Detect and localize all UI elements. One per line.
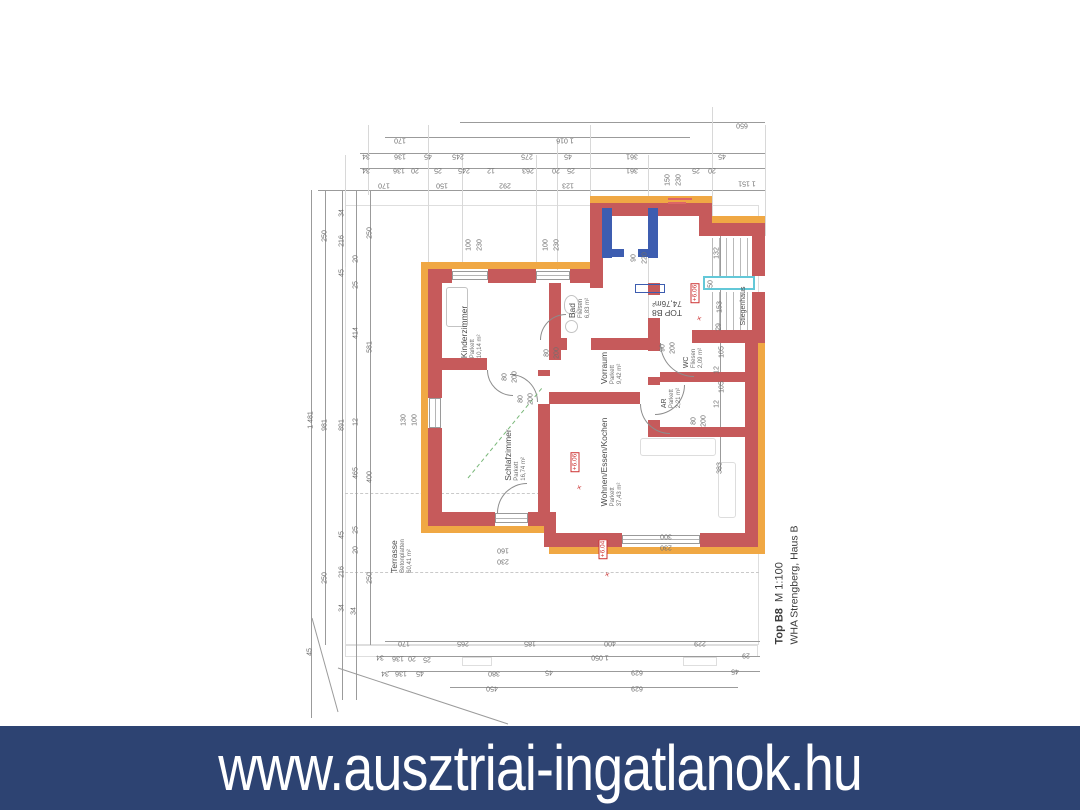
scale-label: M 1:100 xyxy=(773,562,785,602)
dimension-label: 45 xyxy=(416,670,424,677)
dimension-label: 383 xyxy=(717,462,724,474)
room-name: Bad xyxy=(568,298,578,318)
roof-edge-tab xyxy=(683,657,717,666)
dimension-label: 160 xyxy=(497,547,509,554)
website-url-text: www.ausztriai-ingatlanok.hu xyxy=(218,731,862,805)
dimension-label: 250 xyxy=(322,230,329,242)
room-label-terrasse: TerrasseBetonplatten60,41 m² xyxy=(390,539,414,573)
dimension-label: 136 xyxy=(394,153,406,160)
dimension-label: 265 xyxy=(457,640,469,647)
terrace-door xyxy=(495,513,528,523)
dimension-label: 380 xyxy=(488,670,500,677)
dimension-label: 136 xyxy=(393,167,405,174)
dimension-label: 465 xyxy=(353,467,360,479)
room-floor-finish: Parkett xyxy=(669,388,676,408)
dimension-label: 230 xyxy=(497,558,509,565)
level-marker: +6.06 xyxy=(571,452,580,472)
insulation-band xyxy=(421,526,556,533)
room-name: WC xyxy=(683,348,691,368)
dimension-line xyxy=(360,153,765,154)
room-name: Kinderzimmer xyxy=(460,306,470,358)
room-label-stiegenhaus: Stiegenhaus xyxy=(740,287,748,326)
dimension-label: 170 xyxy=(398,640,410,647)
dimension-label: 292 xyxy=(499,182,511,189)
neighbor-wall-segment xyxy=(602,249,624,257)
dimension-label: 34 xyxy=(351,607,358,615)
dimension-label: 275 xyxy=(521,153,533,160)
red-stamp-mark xyxy=(668,198,692,200)
room-name: Stiegenhaus xyxy=(740,287,748,326)
dimension-label: 150 xyxy=(436,182,448,189)
wall-segment xyxy=(699,223,765,236)
room-area: 60,41 m² xyxy=(407,539,414,573)
extension-line xyxy=(428,125,429,269)
dimension-label: 45 xyxy=(339,531,346,539)
extension-line xyxy=(368,125,369,195)
insulation-band xyxy=(712,216,765,223)
insulation-band xyxy=(549,547,765,554)
dimension-label: 136 xyxy=(392,655,404,662)
wall-segment xyxy=(692,330,765,343)
sink-outline xyxy=(565,320,578,333)
dimension-label: 250 xyxy=(322,572,329,584)
dimension-label: 200 xyxy=(701,415,708,427)
dimension-label: 34 xyxy=(339,604,346,612)
dimension-label: 629 xyxy=(631,669,643,676)
dimension-label: 230 xyxy=(477,239,484,251)
wall-segment xyxy=(648,343,660,351)
room-floor-finish: Parkett xyxy=(514,429,521,480)
room-name: AR xyxy=(661,388,669,408)
dimension-line xyxy=(318,190,765,191)
dimension-line xyxy=(342,190,343,700)
dimension-label: 90 xyxy=(660,344,667,352)
dimension-label: 25 xyxy=(434,167,442,174)
dimension-label: 20 xyxy=(353,546,360,554)
dimension-label: 34 xyxy=(376,654,384,661)
extension-line xyxy=(765,125,766,236)
dimension-line xyxy=(311,190,312,718)
room-name: Schlafzimmer xyxy=(504,429,514,480)
room-label-bad: BadFliesen6,83 m² xyxy=(568,298,592,318)
unit-stamp: TOP B874,76m² xyxy=(652,298,682,318)
window xyxy=(536,271,570,280)
insulation-band xyxy=(421,262,428,533)
dimension-label: 100 xyxy=(466,239,473,251)
extension-line xyxy=(536,155,537,269)
dimension-label: 185 xyxy=(524,640,536,647)
wall-segment xyxy=(428,358,487,370)
wall-segment xyxy=(549,392,640,404)
room-label-vorraum: VorraumParkett9,42 m² xyxy=(600,352,624,384)
level-marker: +6.06 xyxy=(691,283,700,303)
room-floor-finish: Parkett xyxy=(610,418,617,507)
wall-segment xyxy=(700,533,758,547)
dimension-label: 25 xyxy=(353,526,360,534)
dimension-label: 229 xyxy=(694,640,706,647)
dimension-label: 220 xyxy=(642,252,649,264)
dimension-label: 250 xyxy=(367,227,374,239)
dimension-label: 200 xyxy=(528,393,535,405)
insulation-band xyxy=(758,337,765,554)
room-floor-finish: Parkett xyxy=(610,352,617,384)
dimension-line xyxy=(385,137,690,138)
dimension-label: 105 xyxy=(719,381,726,393)
dimension-label: 45 xyxy=(339,269,346,277)
dimension-label: 361 xyxy=(626,167,638,174)
dimension-label: 216 xyxy=(339,235,346,247)
dimension-label: 29 xyxy=(742,652,750,659)
window xyxy=(429,398,441,428)
dimension-label: 400 xyxy=(367,471,374,483)
dimension-label: 20 xyxy=(353,255,360,263)
room-area: 2,09 m² xyxy=(698,348,705,368)
dimension-label: 45 xyxy=(564,153,572,160)
dimension-label: 200 xyxy=(554,347,561,359)
dimension-label: 230 xyxy=(554,239,561,251)
dimension-label: 90 xyxy=(631,254,638,262)
wall-segment xyxy=(528,512,556,526)
dimension-label: 105 xyxy=(719,346,726,358)
dimension-label: 25 xyxy=(423,656,431,663)
dimension-label: 29 xyxy=(716,323,723,331)
dimension-label: 450 xyxy=(486,685,498,692)
dimension-label: 153 xyxy=(717,301,724,313)
dimension-label: 150 xyxy=(665,174,672,186)
dimension-label: 361 xyxy=(626,153,638,160)
red-stamp-mark xyxy=(668,202,686,204)
dimension-label: 12 xyxy=(487,167,495,174)
dimension-label: 45 xyxy=(307,648,314,656)
insulation-band xyxy=(421,262,602,269)
dimension-line xyxy=(380,656,760,657)
wall-segment xyxy=(648,330,660,343)
dimension-label: 20 xyxy=(708,167,716,174)
dimension-label: 891 xyxy=(339,419,346,431)
room-area: 10,14 m² xyxy=(477,306,484,358)
dimension-label: 12 xyxy=(714,366,721,374)
dimension-line xyxy=(460,122,765,123)
dimension-label: 20 xyxy=(552,167,560,174)
dimension-label: 136 xyxy=(395,670,407,677)
room-floor-finish: Betonplatten xyxy=(400,539,407,573)
room-label-schlafzimmer: SchlafzimmerParkett16,74 m² xyxy=(504,429,528,480)
dimension-label: 400 xyxy=(604,640,616,647)
wall-segment xyxy=(538,404,550,512)
wall-segment xyxy=(660,372,745,382)
wall-segment xyxy=(556,533,622,547)
room-floor-finish: Fliesen xyxy=(578,298,585,318)
room-label-wohnen-essen-kochen: Wohnen/Essen/KochenParkett37,43 m² xyxy=(600,418,624,507)
dimension-label: 25 xyxy=(353,281,360,289)
room-area: 16,74 m² xyxy=(521,429,528,480)
dimension-label: 200 xyxy=(512,371,519,383)
dimension-label: 25 xyxy=(692,167,700,174)
dimension-line xyxy=(360,168,765,169)
dimension-label: 80 xyxy=(518,395,525,403)
dimension-label: 12 xyxy=(714,400,721,408)
dimension-label: 12 xyxy=(353,418,360,426)
room-label-ar: ARParkett2,21 m² xyxy=(661,388,683,408)
dimension-label: 45 xyxy=(731,668,739,675)
dimension-label: 45 xyxy=(545,669,553,676)
dimension-label: 1 481 xyxy=(308,411,315,429)
room-area: 37,43 m² xyxy=(617,418,624,507)
dimension-label: 20 xyxy=(411,167,419,174)
dimension-label: 300 xyxy=(660,533,672,540)
dimension-label: 80 xyxy=(544,349,551,357)
room-area: 6,83 m² xyxy=(585,298,592,318)
dimension-label: 230 xyxy=(676,174,683,186)
roof-edge-tab xyxy=(462,657,492,666)
dimension-label: 123 xyxy=(562,182,574,189)
dimension-label: 245 xyxy=(452,153,464,160)
room-label-wc: WCFliesen2,09 m² xyxy=(683,348,705,368)
dimension-label: 170 xyxy=(394,137,406,144)
dimension-label: 650 xyxy=(736,122,748,129)
dimension-label: 34 xyxy=(362,153,370,160)
dimension-label: 216 xyxy=(339,566,346,578)
floor-plan-drawing: 6501701 01634136452452754536145341362025… xyxy=(0,0,1080,727)
wall-segment xyxy=(428,269,442,398)
room-floor-finish: Parkett xyxy=(470,306,477,358)
dimension-label: 34 xyxy=(362,167,370,174)
dimension-label: 100 xyxy=(543,239,550,251)
dimension-label: 170 xyxy=(378,182,390,189)
unit-stamp-name: TOP B8 xyxy=(652,308,682,318)
wall-segment xyxy=(488,269,536,283)
room-label-kinderzimmer: KinderzimmerParkett10,14 m² xyxy=(460,306,484,358)
room-name: Vorraum xyxy=(600,352,610,384)
extension-line xyxy=(590,125,591,203)
wall-segment xyxy=(538,370,550,376)
dimension-label: 100 xyxy=(412,414,419,426)
dimension-label: 1 151 xyxy=(738,180,756,187)
wall-segment xyxy=(648,318,660,330)
room-area: 2,21 m² xyxy=(676,388,683,408)
dimension-label: 981 xyxy=(322,419,329,431)
project-name: WHA Strengberg, Haus B xyxy=(787,525,801,644)
dimension-label: 200 xyxy=(670,342,677,354)
dimension-label: 414 xyxy=(353,327,360,339)
room-area: 9,42 m² xyxy=(617,352,624,384)
dimension-label: 130 xyxy=(401,414,408,426)
dimension-label: 629 xyxy=(631,685,643,692)
dimension-line xyxy=(356,190,357,700)
dimension-label: 581 xyxy=(367,341,374,353)
entry-mat xyxy=(635,284,665,293)
room-name: Wohnen/Essen/Kochen xyxy=(600,418,610,507)
level-marker: +6.04 xyxy=(599,539,608,559)
dimension-label: 263 xyxy=(522,167,534,174)
extension-line xyxy=(712,107,713,216)
dimension-line xyxy=(388,671,760,672)
dimension-label: 132 xyxy=(714,247,721,259)
wall-segment xyxy=(428,512,495,526)
screenshot-root: 6501701 01634136452452754536145341362025… xyxy=(0,0,1080,810)
insulation-band xyxy=(590,196,712,203)
dimension-label: 34 xyxy=(381,670,389,677)
wall-segment xyxy=(591,338,648,350)
dimension-label: 34 xyxy=(339,209,346,217)
website-banner: www.ausztriai-ingatlanok.hu xyxy=(0,726,1080,810)
wall-segment xyxy=(745,343,758,547)
room-name: Terrasse xyxy=(390,539,400,573)
kitchen-counter-outline xyxy=(640,438,716,456)
dimension-label: 80 xyxy=(502,373,509,381)
unit-name: Top B8 xyxy=(773,608,785,644)
dimension-label: 45 xyxy=(424,153,432,160)
dimension-label: 230 xyxy=(660,544,672,551)
title-block: Top B8 M 1:100 WHA Strengberg, Haus B xyxy=(772,525,801,644)
wall-segment xyxy=(752,236,765,276)
dimension-label: 250 xyxy=(367,572,374,584)
title-block-unit-scale: Top B8 M 1:100 xyxy=(772,525,787,644)
dimension-label: 245 xyxy=(458,167,470,174)
wall-segment xyxy=(648,377,660,385)
unit-stamp-area: 74,76m² xyxy=(652,298,682,308)
dimension-label: 25 xyxy=(567,167,575,174)
dimension-label: 50 xyxy=(708,280,715,288)
dimension-label: 80 xyxy=(691,417,698,425)
dimension-label: 20 xyxy=(408,655,416,662)
window xyxy=(452,271,488,280)
dimension-label: 45 xyxy=(718,153,726,160)
wall-segment xyxy=(660,427,745,437)
dimension-label: 1 016 xyxy=(556,137,574,144)
dimension-label: 1 050 xyxy=(591,654,609,661)
room-floor-finish: Fliesen xyxy=(691,348,698,368)
